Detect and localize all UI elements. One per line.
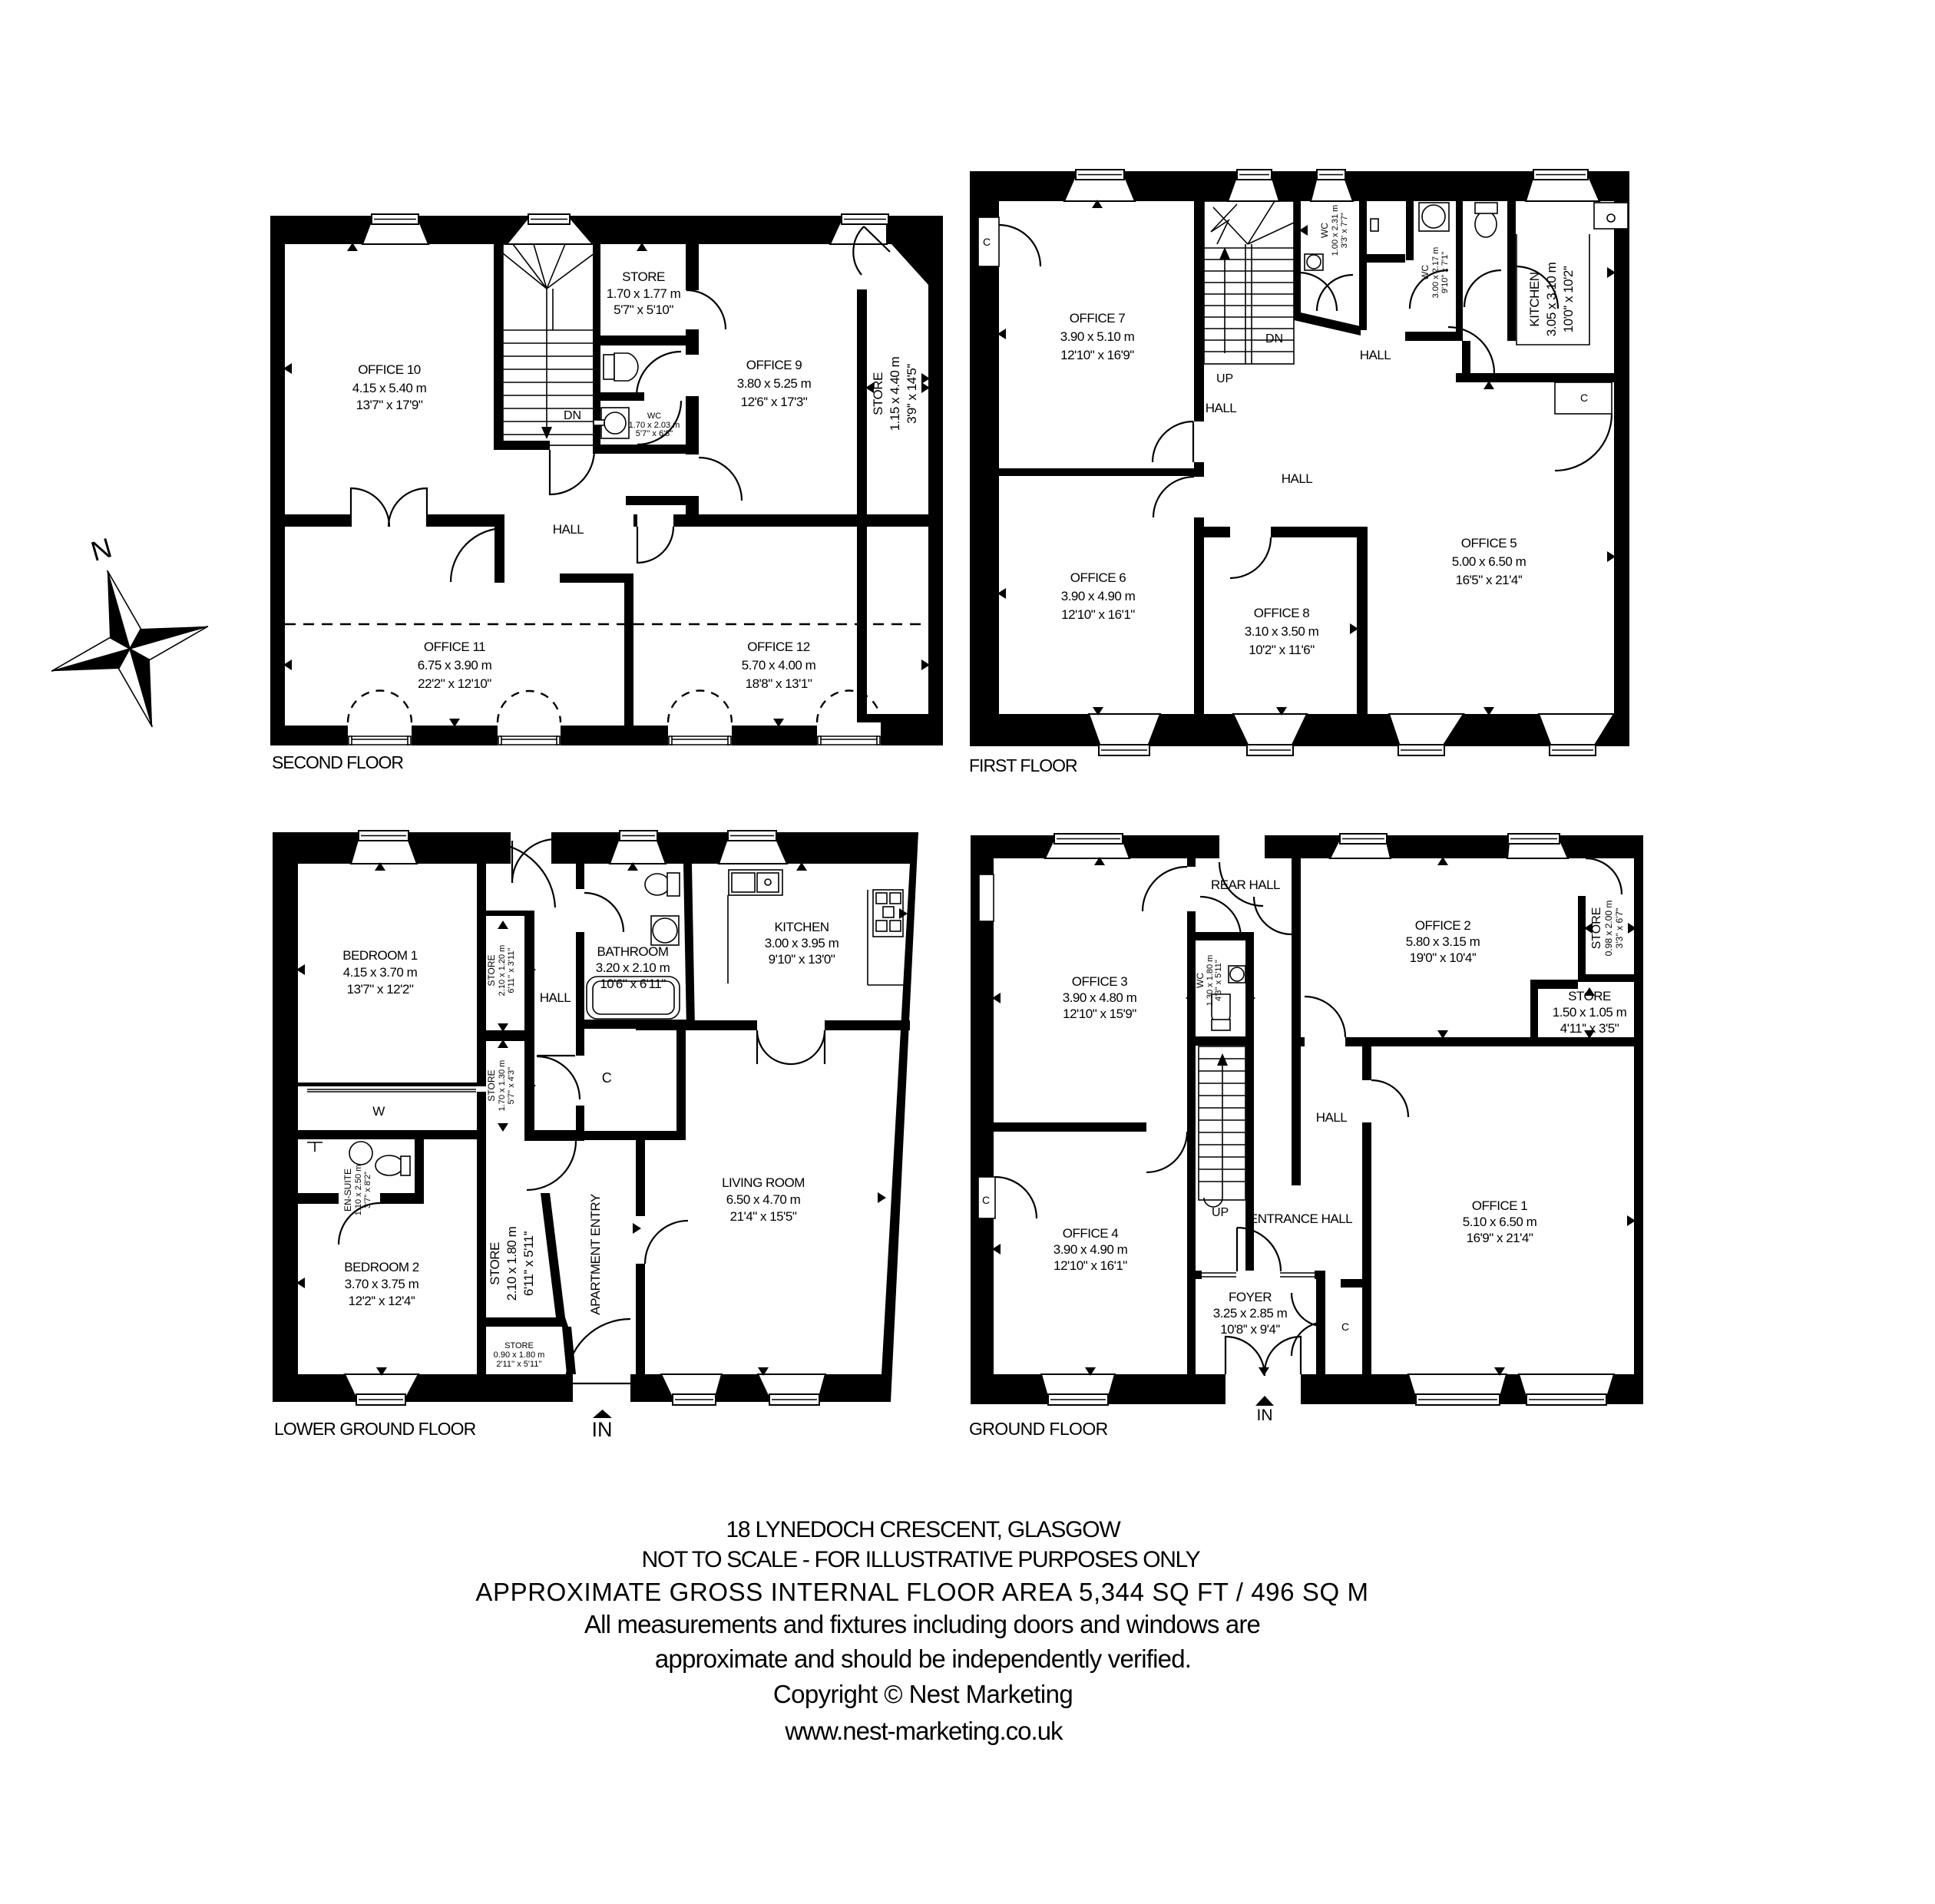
svg-text:HALL: HALL [1282,471,1313,486]
svg-text:HALL: HALL [1360,348,1391,362]
svg-text:OFFICE 1: OFFICE 1 [1472,1198,1528,1213]
svg-text:6.50 x 4.70 m: 6.50 x 4.70 m [726,1192,801,1207]
svg-text:Copyright © Nest Marketing: Copyright © Nest Marketing [773,1680,1073,1708]
svg-text:6'11'' x 5'11'': 6'11'' x 5'11'' [521,1231,536,1296]
svg-text:19'0" x 10'4'': 19'0" x 10'4'' [1410,950,1477,965]
svg-text:OFFICE 9: OFFICE 9 [746,358,802,372]
svg-text:C: C [982,1194,990,1206]
svg-text:OFFICE 4: OFFICE 4 [1063,1226,1119,1241]
svg-text:3'9'' x 14'5'': 3'9'' x 14'5'' [905,364,919,424]
svg-text:2.10 x 1.80 m: 2.10 x 1.80 m [504,1226,519,1301]
svg-text:3.00 x 2.17 m: 3.00 x 2.17 m [1431,247,1440,299]
svg-text:OFFICE 10: OFFICE 10 [358,362,421,377]
svg-text:3'7" x 8'2": 3'7" x 8'2" [363,1172,372,1208]
svg-text:HALL: HALL [540,990,571,1005]
svg-text:IN: IN [592,1418,613,1441]
svg-text:DN: DN [564,409,581,422]
svg-text:STORE: STORE [622,269,665,284]
svg-text:6.75 x 3.90 m: 6.75 x 3.90 m [418,658,492,673]
svg-text:5.10 x 6.50 m: 5.10 x 6.50 m [1463,1215,1537,1229]
svg-text:LIVING ROOM: LIVING ROOM [722,1175,805,1190]
svg-text:C: C [602,1070,612,1086]
svg-text:OFFICE 12: OFFICE 12 [747,640,810,654]
svg-text:3.80 x 5.25 m: 3.80 x 5.25 m [737,376,812,391]
svg-text:ENTRANCE HALL: ENTRANCE HALL [1249,1211,1352,1226]
svg-text:BEDROOM 1: BEDROOM 1 [342,948,418,963]
svg-text:3.20 x 2.10 m: 3.20 x 2.10 m [596,960,670,975]
svg-text:12'6'' x 17'3": 12'6'' x 17'3" [741,395,808,409]
svg-text:UP: UP [1212,1206,1229,1219]
svg-text:10'6" x 6'11": 10'6" x 6'11" [600,977,666,991]
svg-text:C: C [1580,392,1588,404]
svg-text:APPROXIMATE GROSS INTERNAL FLO: APPROXIMATE GROSS INTERNAL FLOOR AREA 5,… [475,1578,1368,1606]
svg-text:18'8" x 13'1": 18'8" x 13'1" [746,676,812,691]
svg-text:13'7" x 12'2": 13'7" x 12'2" [347,982,414,997]
svg-text:IN: IN [1257,1407,1273,1424]
svg-text:STORE: STORE [486,1069,497,1101]
svg-text:OFFICE 11: OFFICE 11 [424,640,485,654]
svg-text:W: W [372,1104,385,1119]
svg-text:5'7'' x 4'3'': 5'7'' x 4'3'' [507,1067,516,1105]
svg-text:BATHROOM: BATHROOM [597,944,669,959]
svg-text:3'3'' x 6'7": 3'3'' x 6'7" [1614,908,1625,949]
svg-text:OFFICE 5: OFFICE 5 [1461,536,1517,550]
svg-text:1.70 x 1.30 m: 1.70 x 1.30 m [498,1060,507,1112]
svg-text:BEDROOM 2: BEDROOM 2 [344,1260,419,1274]
svg-text:12'10" x 16'1": 12'10" x 16'1" [1061,607,1135,622]
svg-text:0.90 x 1.80 m: 0.90 x 1.80 m [494,1350,545,1360]
svg-text:12'10" x 15'9": 12'10" x 15'9" [1063,1007,1136,1021]
svg-text:1.15 x 4.40 m: 1.15 x 4.40 m [888,356,902,431]
svg-text:21'4" x 15'5": 21'4" x 15'5" [730,1209,797,1224]
svg-text:NOT TO SCALE - FOR ILLUSTRATIV: NOT TO SCALE - FOR ILLUSTRATIVE PURPOSES… [642,1547,1201,1572]
svg-text:WC: WC [1195,973,1206,988]
svg-text:WC: WC [1319,223,1330,238]
svg-text:1.10 x 2.50 m: 1.10 x 2.50 m [354,1165,363,1216]
svg-text:KITCHEN: KITCHEN [1527,272,1542,326]
svg-text:13'7" x 17'9": 13'7" x 17'9" [356,398,423,412]
svg-text:GROUND FLOOR: GROUND FLOOR [969,1419,1108,1439]
svg-text:C: C [983,236,991,248]
svg-text:1.70 x 1.77 m: 1.70 x 1.77 m [607,286,681,301]
svg-text:4.15 x 5.40 m: 4.15 x 5.40 m [352,381,427,395]
svg-text:3.90 x 4.90 m: 3.90 x 4.90 m [1053,1242,1128,1257]
svg-text:16'5" x 21'4'': 16'5" x 21'4'' [1456,573,1523,587]
svg-text:1.00 x 2.31 m: 1.00 x 2.31 m [1331,205,1340,256]
svg-text:3'3' x 7'7'': 3'3' x 7'7'' [1340,213,1349,249]
svg-text:22'2" x 12'10": 22'2" x 12'10" [418,676,491,691]
svg-text:2'11'' x 5'11'': 2'11'' x 5'11'' [496,1360,541,1369]
svg-text:3.90 x 4.90 m: 3.90 x 4.90 m [1061,589,1136,603]
svg-text:OFFICE 3: OFFICE 3 [1072,974,1128,989]
svg-text:10'8'' x 9'4'': 10'8'' x 9'4'' [1220,1322,1280,1337]
svg-text:3.05 x 3.10 m: 3.05 x 3.10 m [1544,262,1559,336]
svg-text:C: C [1341,1321,1349,1333]
svg-text:9'10" x 7'1": 9'10" x 7'1" [1440,252,1450,293]
svg-text:0.98 x 2.00 m: 0.98 x 2.00 m [1603,901,1614,957]
svg-text:STORE: STORE [504,1341,534,1350]
svg-text:All measurements and fixtures: All measurements and fixtures including … [584,1610,1260,1638]
svg-text:STORE: STORE [488,1242,502,1285]
svg-text:WC: WC [647,412,661,421]
svg-text:3.25 x 2.85 m: 3.25 x 2.85 m [1213,1306,1288,1321]
svg-text:12'2'' x 12'4'': 12'2'' x 12'4'' [349,1294,415,1308]
svg-text:3.90 x 5.10 m: 3.90 x 5.10 m [1060,329,1135,344]
svg-text:OFFICE 8: OFFICE 8 [1254,606,1310,620]
svg-text:18 LYNEDOCH CRESCENT, GLASGOW: 18 LYNEDOCH CRESCENT, GLASGOW [726,1517,1121,1542]
svg-text:5.80 x 3.15 m: 5.80 x 3.15 m [1406,934,1480,949]
svg-text:LOWER GROUND FLOOR: LOWER GROUND FLOOR [274,1419,476,1439]
svg-text:DN: DN [1265,332,1283,345]
svg-text:HALL: HALL [1206,401,1237,415]
svg-text:10'0'' x 10'2'': 10'0'' x 10'2'' [1561,266,1576,332]
svg-text:OFFICE 6: OFFICE 6 [1070,570,1126,585]
svg-text:12'10" x 16'9": 12'10" x 16'9" [1060,348,1134,362]
svg-text:APARTMENT ENTRY: APARTMENT ENTRY [588,1194,603,1315]
svg-text:REAR HALL: REAR HALL [1211,878,1280,892]
svg-text:STORE: STORE [486,954,497,986]
svg-text:UP: UP [1216,372,1233,385]
svg-text:WC: WC [1420,265,1431,280]
svg-text:3.90 x 4.80 m: 3.90 x 4.80 m [1063,990,1137,1005]
svg-text:12'10" x 16'1": 12'10" x 16'1" [1053,1258,1127,1273]
svg-text:1.50 x 1.05 m: 1.50 x 1.05 m [1553,1005,1627,1020]
svg-text:approximate and should be inde: approximate and should be independently … [655,1645,1191,1673]
svg-text:10'2" x 11'6": 10'2" x 11'6" [1249,643,1315,657]
svg-text:STORE: STORE [871,372,885,415]
svg-text:OFFICE 7: OFFICE 7 [1070,311,1126,326]
svg-text:2.10 x 1.20 m: 2.10 x 1.20 m [498,945,507,997]
svg-text:www.nest-marketing.co.uk: www.nest-marketing.co.uk [784,1717,1063,1745]
svg-text:3.00 x 3.95 m: 3.00 x 3.95 m [765,936,839,950]
svg-text:OFFICE 2: OFFICE 2 [1415,918,1471,933]
svg-text:6'11'' x 3'11'': 6'11'' x 3'11'' [507,947,516,993]
svg-text:FIRST FLOOR: FIRST FLOOR [969,755,1077,775]
svg-text:EN-SUITE: EN-SUITE [342,1169,353,1211]
svg-text:5'7" x 5'10": 5'7" x 5'10" [614,302,673,317]
svg-text:5'7'' x 6'8": 5'7'' x 6'8" [636,429,673,438]
svg-text:3.10 x 3.50 m: 3.10 x 3.50 m [1245,624,1319,639]
svg-text:KITCHEN: KITCHEN [774,920,829,934]
svg-text:5.70 x 4.00 m: 5.70 x 4.00 m [742,658,816,673]
svg-text:HALL: HALL [1316,1110,1348,1125]
svg-text:FOYER: FOYER [1229,1290,1272,1304]
svg-text:4'3'' x 5'11'': 4'3'' x 5'11'' [1214,960,1223,1001]
svg-text:4.15 x 3.70 m: 4.15 x 3.70 m [343,965,418,980]
svg-text:HALL: HALL [553,522,584,537]
svg-text:5.00 x 6.50 m: 5.00 x 6.50 m [1452,554,1526,569]
svg-text:16'9" x 21'4": 16'9" x 21'4" [1467,1231,1533,1245]
svg-text:3.70 x 3.75 m: 3.70 x 3.75 m [345,1277,419,1291]
svg-text:9'10" x 13'0": 9'10" x 13'0" [769,952,835,967]
svg-text:SECOND FLOOR: SECOND FLOOR [272,752,403,772]
